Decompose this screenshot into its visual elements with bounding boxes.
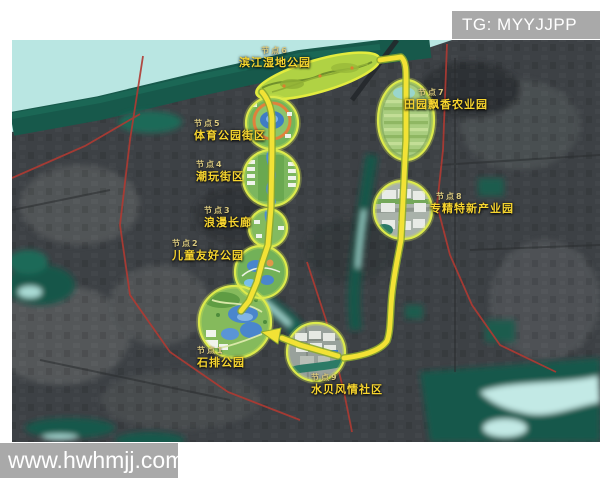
node4-id: 节点4: [196, 160, 244, 170]
label-node7: 节点7 田园飘香农业园: [404, 88, 488, 111]
label-node1: 节点1 石排公园: [197, 346, 245, 369]
node6-name: 滨江湿地公园: [239, 56, 311, 69]
node3-name: 浪漫长廊: [204, 216, 252, 229]
label-node6: 节点6 滨江湿地公园: [232, 46, 318, 69]
label-node8: 节点8 专精特新产业园: [430, 192, 514, 215]
label-node9: 节点9 水贝风情社区: [311, 373, 383, 396]
node1-id: 节点1: [197, 346, 245, 356]
node9-id: 节点9: [311, 373, 383, 383]
node2-name: 儿童友好公园: [172, 249, 244, 262]
node9-name: 水贝风情社区: [311, 383, 383, 396]
node5-id: 节点5: [194, 119, 266, 129]
label-node3: 节点3 浪漫长廊: [204, 206, 252, 229]
node4-name: 潮玩街区: [196, 170, 244, 183]
node8-id: 节点8: [430, 192, 514, 202]
node8-name: 专精特新产业园: [430, 202, 514, 215]
node7-name: 田园飘香农业园: [404, 98, 488, 111]
map-svg: [12, 40, 600, 442]
node6-id: 节点6: [232, 46, 318, 56]
node7-id: 节点7: [404, 88, 488, 98]
page: { "header": { "badge": "TG: MYYJJPP" }, …: [0, 0, 600, 480]
map-image: [12, 40, 600, 442]
label-node2: 节点2 儿童友好公园: [172, 239, 244, 262]
label-node4: 节点4 潮玩街区: [196, 160, 244, 183]
node1-name: 石排公园: [197, 356, 245, 369]
label-node5: 节点5 体育公园街区: [194, 119, 266, 142]
watermark-url: www.hwhmjj.com: [0, 443, 178, 478]
telegram-badge: TG: MYYJJPP: [452, 11, 600, 39]
node5-name: 体育公园街区: [194, 129, 266, 142]
node2-id: 节点2: [172, 239, 244, 249]
node3-id: 节点3: [204, 206, 252, 216]
